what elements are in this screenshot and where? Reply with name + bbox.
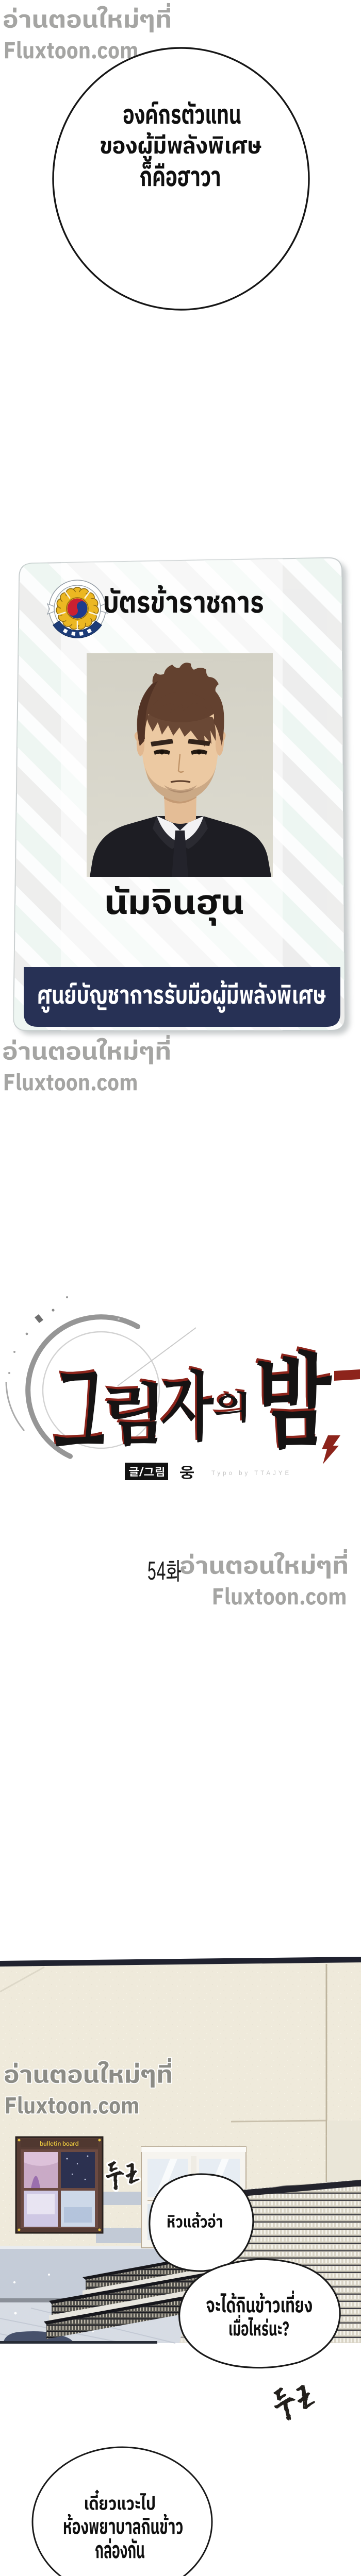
svg-text:Typo by TTAJYE: Typo by TTAJYE [211,1470,291,1477]
